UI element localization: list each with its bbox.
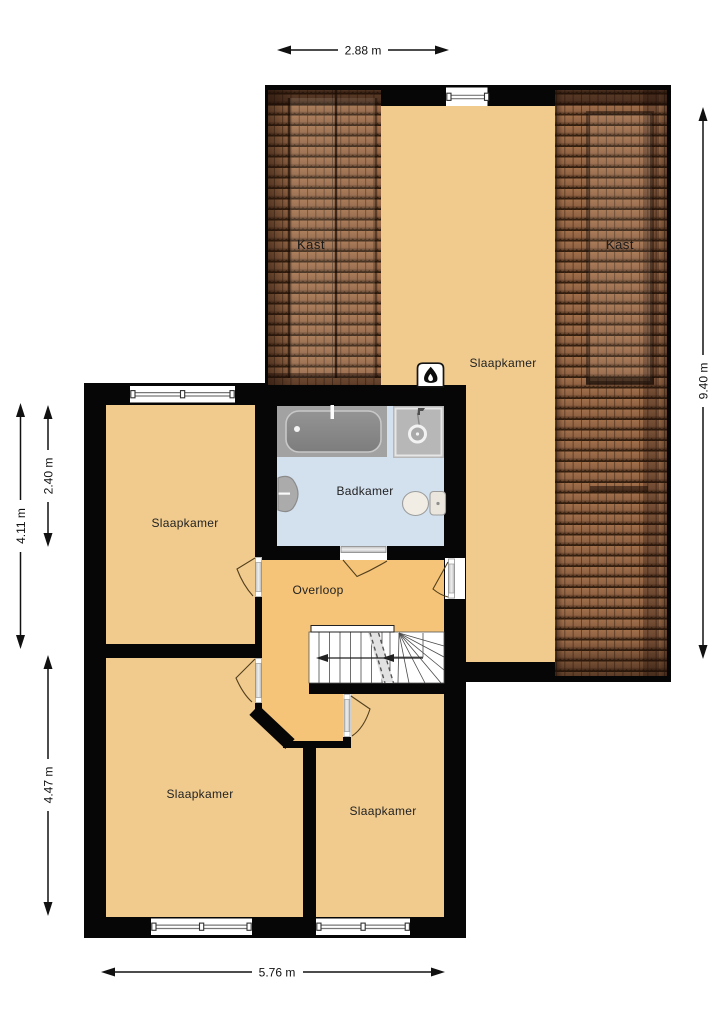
svg-text:4.47 m: 4.47 m <box>42 767 56 804</box>
svg-text:5.76 m: 5.76 m <box>259 966 296 980</box>
svg-text:Kast: Kast <box>297 237 325 252</box>
svg-text:4.11 m: 4.11 m <box>14 508 28 544</box>
svg-text:Slaapkamer: Slaapkamer <box>469 356 536 370</box>
svg-text:9.40 m: 9.40 m <box>697 363 711 400</box>
svg-text:Overloop: Overloop <box>292 583 343 597</box>
svg-text:Kast: Kast <box>606 237 634 252</box>
svg-text:Slaapkamer: Slaapkamer <box>349 804 416 818</box>
svg-text:Badkamer: Badkamer <box>336 484 393 498</box>
svg-text:2.40 m: 2.40 m <box>42 458 56 495</box>
svg-text:2.88 m: 2.88 m <box>345 44 382 58</box>
svg-text:Slaapkamer: Slaapkamer <box>151 516 218 530</box>
svg-text:Slaapkamer: Slaapkamer <box>166 787 233 801</box>
